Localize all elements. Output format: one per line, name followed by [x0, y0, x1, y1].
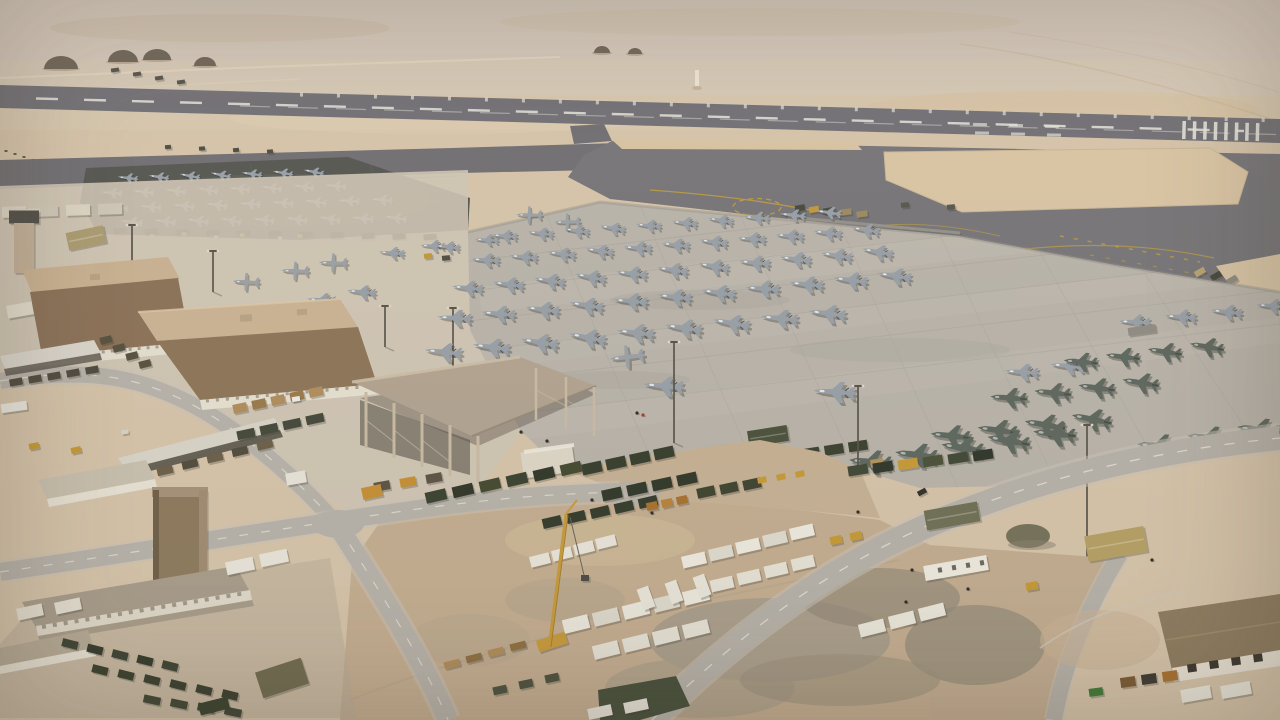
ground-patch — [692, 86, 702, 90]
control-tower-shaft — [14, 223, 34, 273]
structure — [90, 274, 100, 281]
terrain-area — [612, 140, 862, 150]
structure — [297, 309, 307, 316]
ground-patch — [790, 338, 1010, 362]
structure — [240, 314, 252, 322]
control-tower-cab — [9, 211, 39, 224]
sand-island — [884, 148, 1248, 212]
intersection — [312, 510, 364, 538]
ground-patch — [1008, 540, 1056, 550]
structure — [153, 490, 159, 584]
structure — [581, 575, 589, 581]
ground-patch — [740, 654, 940, 706]
ground-patch — [500, 8, 1020, 36]
structure — [199, 490, 207, 584]
ground-patch — [50, 14, 390, 42]
aerial-photo-desert-airbase — [0, 0, 1280, 720]
distant-marker — [695, 70, 699, 86]
scene-canvas — [0, 0, 1280, 720]
brown-tower — [153, 490, 207, 584]
ground-patch — [1040, 610, 1160, 670]
